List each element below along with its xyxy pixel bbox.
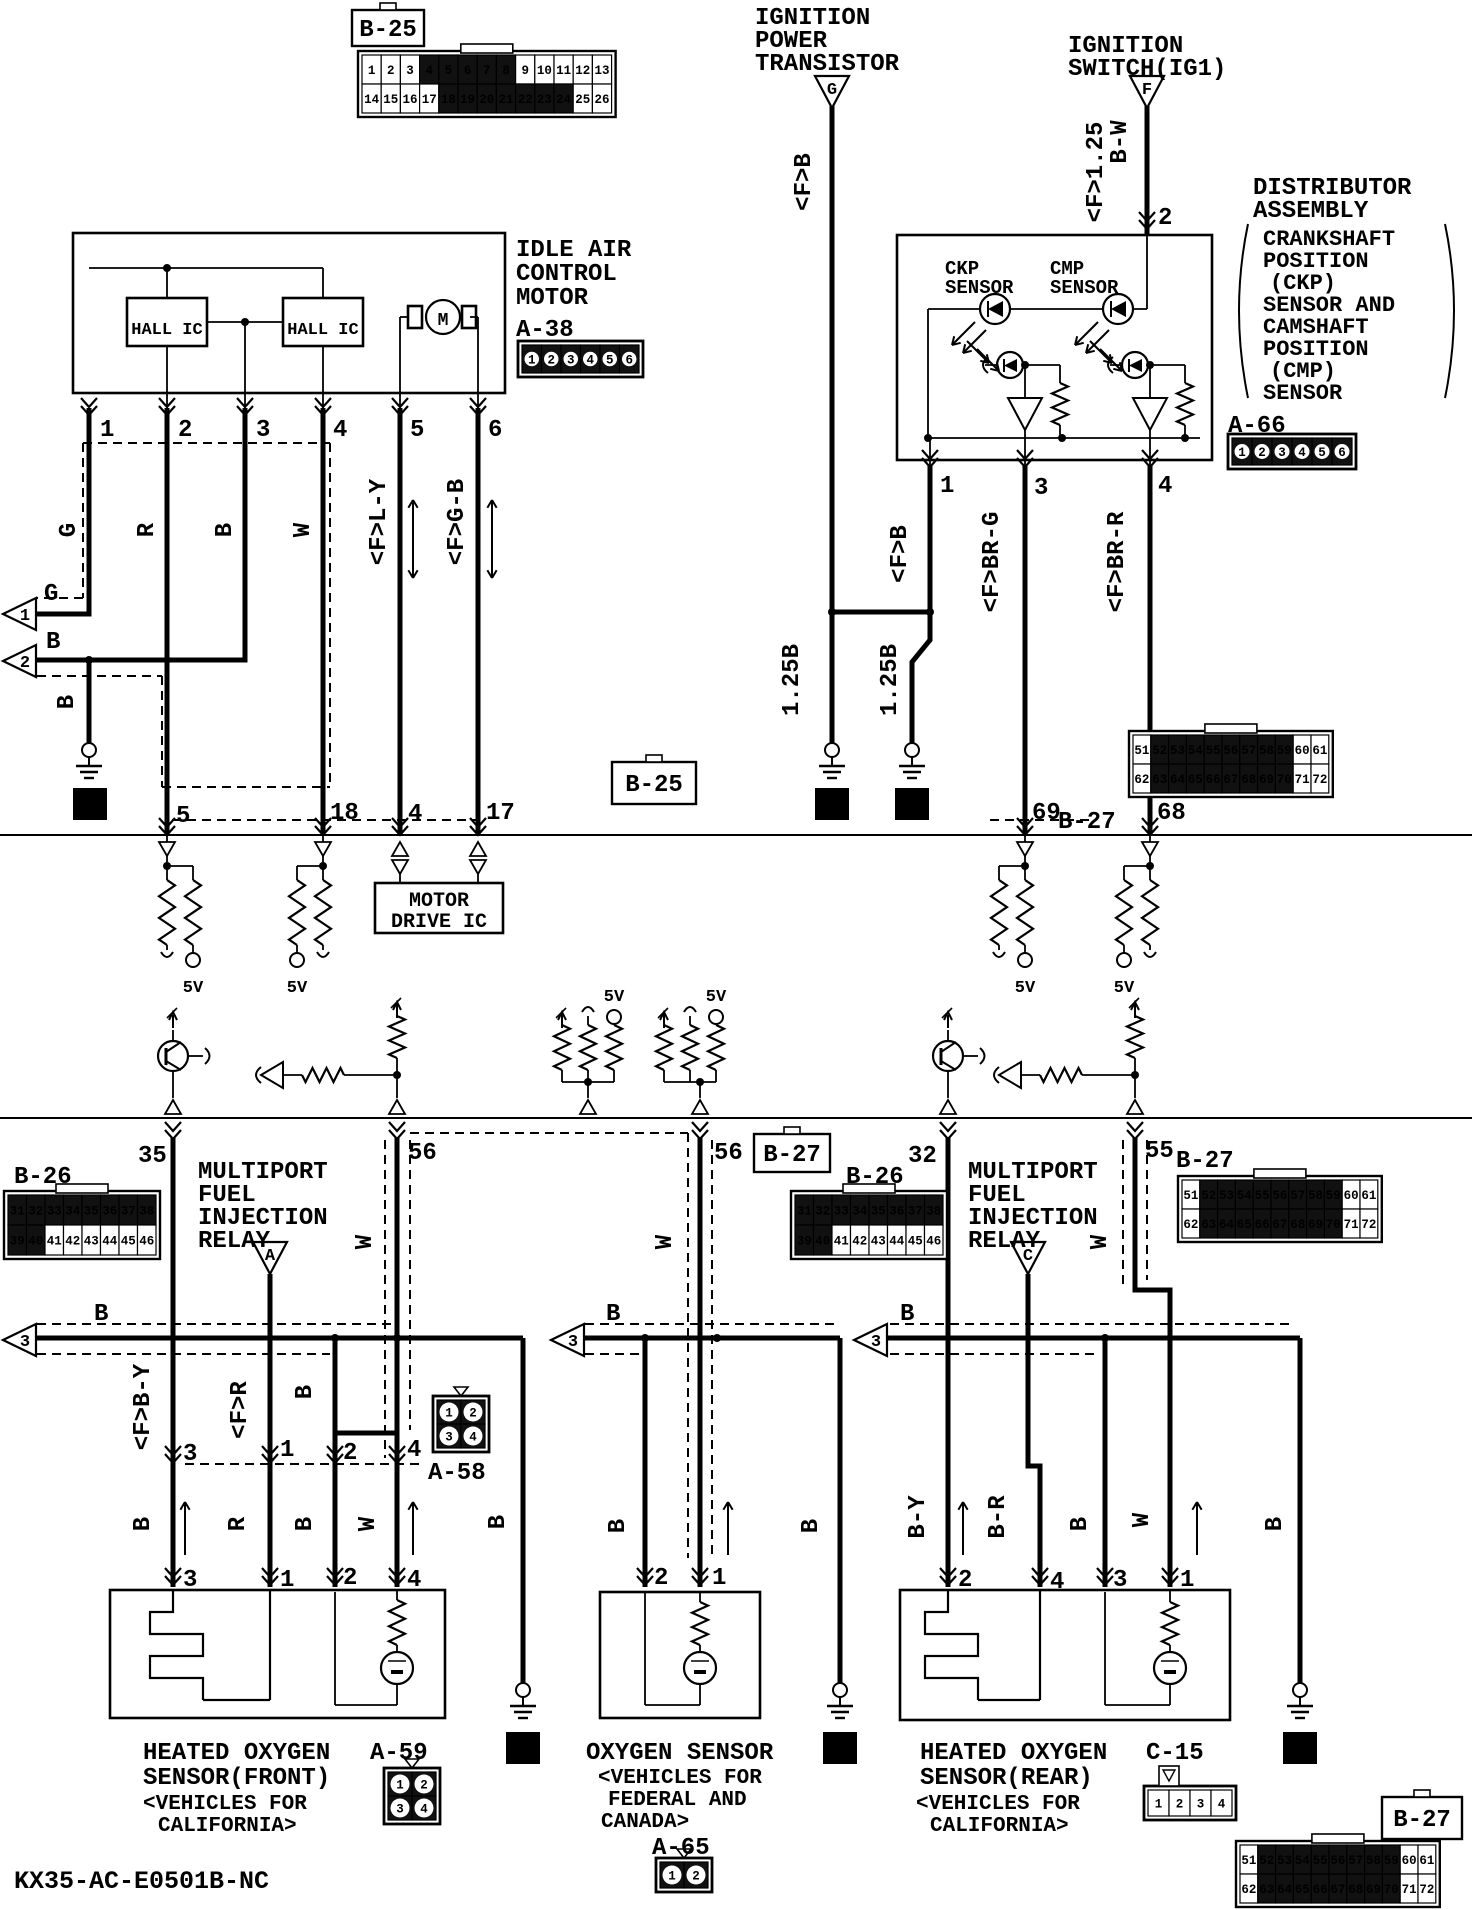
connector-b27-bottom-pin-56: 56 — [1330, 1854, 1345, 1868]
ho2s-front-2: SENSOR(FRONT) — [143, 1765, 330, 1792]
pin-ecu-55: 55 — [1145, 1138, 1174, 1165]
connector-b27-top-pin-66: 66 — [1206, 773, 1221, 787]
ref-3-mid-letter: 3 — [568, 1333, 578, 1352]
connector-a66-pin-5: 5 — [1318, 446, 1326, 460]
flag-b27-bottom-text: B-27 — [1393, 1807, 1451, 1834]
pin-ecu-17: 17 — [486, 800, 515, 827]
volt-5v-7: 5V — [706, 988, 727, 1007]
pin-o2-2: 2 — [654, 1565, 668, 1592]
idle-air-control-motor-code: A-38 — [516, 317, 574, 344]
connector-b27-top-pin-64: 64 — [1170, 773, 1186, 787]
connector-b27-top-pin-60: 60 — [1295, 744, 1310, 758]
connector-b27-top-pin-51: 51 — [1134, 744, 1149, 758]
volt-5v-6: 5V — [604, 988, 625, 1007]
connector-b27-midright-pin-52: 52 — [1201, 1189, 1216, 1203]
volt-5v-4: 5V — [1015, 979, 1036, 998]
wire-fby: <F>B-Y — [130, 1363, 157, 1450]
connector-a38-pin-6: 6 — [625, 354, 633, 368]
wire-b-horiz-mid: B — [606, 1301, 620, 1328]
connector-b26-mid-pin-46: 46 — [926, 1235, 941, 1249]
ho2s-front-code: A-59 — [370, 1740, 428, 1767]
ground-16-a: 16 — [73, 788, 107, 820]
wire-w-55: W — [1087, 1234, 1114, 1249]
connector-b25-top-pin-26: 26 — [594, 93, 609, 107]
volt-5v-1: 5V — [183, 979, 204, 998]
connector-b27-bottom: 5152535455565758596061626364656667686970… — [1236, 1834, 1440, 1907]
ground-16-e-text: 16 — [1287, 1738, 1313, 1763]
flag-b27-mid: B-27 — [754, 1127, 830, 1172]
wire-b-horiz: B — [46, 629, 60, 656]
flag-b25-mid: B-25 — [612, 755, 696, 804]
motor-drive-ic-1: MOTOR — [409, 890, 469, 913]
connector-b26-left-pin-45: 45 — [121, 1235, 136, 1249]
o2-mid-4: CANADA> — [601, 1811, 689, 1834]
connector-b25-top-pin-7: 7 — [483, 64, 491, 78]
pin-ecu-69: 69 — [1032, 800, 1061, 827]
connector-b25-top-pin-10: 10 — [537, 64, 552, 78]
connector-b26-mid-pin-33: 33 — [834, 1205, 849, 1219]
wire-w1: W — [290, 522, 317, 537]
pin-ho2sf-4: 4 — [407, 1567, 421, 1594]
motor-drive-ic-2: DRIVE IC — [391, 911, 487, 934]
connector-b26-left-label: B-26 — [14, 1164, 72, 1191]
connector-b25-top-pin-22: 22 — [518, 93, 533, 107]
connector-b27-top-pin-59: 59 — [1277, 744, 1292, 758]
pin-ho2sr-2: 2 — [958, 1567, 972, 1594]
connector-b25-top-pin-25: 25 — [575, 93, 590, 107]
connector-b27-top-pin-57: 57 — [1241, 744, 1256, 758]
cmp-sensor-2: SENSOR — [1050, 277, 1119, 299]
connector-b27-midright-pin-51: 51 — [1183, 1189, 1198, 1203]
connector-b27-top-pin-69: 69 — [1259, 773, 1274, 787]
idle-air-control-motor-label-3: MOTOR — [516, 285, 589, 312]
pin-ecu-56-mid: 56 — [714, 1140, 743, 1167]
connector-b26-left-pin-46: 46 — [139, 1235, 154, 1249]
idle-air-control-motor-label-2: CONTROL — [516, 261, 617, 288]
ground-16-d-text: 16 — [827, 1738, 853, 1763]
wire-b-mid1: B — [605, 1519, 632, 1533]
pin-iacm-3: 3 — [256, 417, 270, 444]
distributor-2: ASSEMBLY — [1253, 198, 1369, 225]
connector-b26-mid-pin-35: 35 — [871, 1205, 886, 1219]
ignition-switch-2: SWITCH(IG1) — [1068, 56, 1226, 83]
distributor-10: SENSOR — [1263, 381, 1343, 406]
footer-code: KX35-AC-E0501B-NC — [14, 1867, 269, 1896]
connector-b27-midright-pin-71: 71 — [1344, 1218, 1359, 1232]
connector-b25-top-pin-3: 3 — [406, 64, 414, 78]
connector-a38-pin-2: 2 — [547, 354, 555, 368]
connector-b26-mid-label: B-26 — [846, 1164, 904, 1191]
connector-a66-pin-1: 1 — [1238, 446, 1246, 460]
connector-c15-pin-3: 3 — [1197, 1798, 1205, 1812]
pin-dist-3: 3 — [1034, 475, 1048, 502]
connector-b27-midright-pin-67: 67 — [1272, 1218, 1287, 1232]
connector-b25-top-pin-1: 1 — [368, 64, 376, 78]
connector-b27-top-pin-54: 54 — [1188, 744, 1204, 758]
connector-b25-top-pin-23: 23 — [537, 93, 552, 107]
wire-b-low1: B — [130, 1517, 157, 1531]
connector-a38: 123456 — [518, 341, 643, 377]
o2-mid-3: FEDERAL AND — [608, 1789, 747, 1812]
connector-c15-pin-2: 2 — [1176, 1798, 1184, 1812]
idle-air-control-motor-label-1: IDLE AIR — [516, 237, 632, 264]
ref-g-ignition-power-transistor-letter: G — [827, 81, 837, 100]
pin-dist-4: 4 — [1158, 473, 1172, 500]
connector-a58-pin-3: 3 — [445, 1431, 453, 1445]
connector-b27-bottom-pin-66: 66 — [1313, 1883, 1328, 1897]
ho2s-rear-3: <VEHICLES FOR — [916, 1793, 1080, 1816]
pin-ho2sf-3: 3 — [183, 1567, 197, 1594]
mfi-relay-left-4: RELAY — [198, 1228, 271, 1255]
connector-b27-midright-pin-58: 58 — [1308, 1189, 1323, 1203]
connector-b26-mid: 31323334353637383940414243444546 — [791, 1184, 947, 1259]
wire-fr: <F>R — [227, 1381, 254, 1439]
ignition-power-transistor-3: TRANSISTOR — [755, 51, 900, 78]
connector-b27-top-pin-56: 56 — [1223, 744, 1238, 758]
connector-b27-bottom-pin-69: 69 — [1366, 1883, 1381, 1897]
ref-3-left-letter: 3 — [20, 1333, 30, 1352]
connector-a58-pin-2: 2 — [469, 1407, 477, 1421]
connector-b25-top-pin-21: 21 — [498, 93, 513, 107]
wire-b1: B — [212, 523, 239, 537]
connector-b25-top-pin-15: 15 — [383, 93, 398, 107]
connector-b27-bottom-pin-63: 63 — [1259, 1883, 1274, 1897]
connector-b27-midright-label: B-27 — [1176, 1148, 1234, 1175]
pin-iacm-4: 4 — [333, 417, 347, 444]
pin-a58-3: 3 — [183, 1441, 197, 1468]
connector-b27-bottom-pin-65: 65 — [1295, 1883, 1310, 1897]
wire-w-rear: W — [1129, 1512, 1156, 1527]
wire-b-mid2: B — [798, 1519, 825, 1533]
connector-b26-left-pin-44: 44 — [102, 1235, 118, 1249]
connector-b27-midright-pin-61: 61 — [1361, 1189, 1376, 1203]
connector-b25-top-pin-13: 13 — [594, 64, 609, 78]
connector-b25-top: 1234567891011121314151617181920212223242… — [358, 44, 616, 117]
hall-ic-left-label: HALL IC — [131, 321, 202, 340]
wire-b-relayzone: B — [292, 1385, 319, 1399]
connector-b26-mid-pin-31: 31 — [797, 1205, 812, 1219]
connector-b26-mid-pin-38: 38 — [926, 1205, 941, 1219]
connector-b27-top-pin-71: 71 — [1295, 773, 1310, 787]
ground-16-b: 16 — [895, 788, 929, 820]
connector-b26-mid-pin-45: 45 — [908, 1235, 923, 1249]
o2-mid-2: <VEHICLES FOR — [598, 1767, 762, 1790]
connector-a59: 1234 — [384, 1759, 440, 1824]
connector-b26-left-pin-43: 43 — [84, 1235, 99, 1249]
ref-3-mid: 3 — [551, 1324, 584, 1356]
connector-b27-midright-pin-60: 60 — [1344, 1189, 1359, 1203]
wire-bw: B-W — [1107, 120, 1134, 164]
ckp-sensor-2: SENSOR — [945, 277, 1014, 299]
connector-b27-bottom-pin-67: 67 — [1330, 1883, 1345, 1897]
connector-b27-top-pin-55: 55 — [1206, 744, 1221, 758]
ho2s-rear-1: HEATED OXYGEN — [920, 1740, 1107, 1767]
wire-b-rear: B — [1067, 1517, 1094, 1531]
connector-b27-top-pin-61: 61 — [1312, 744, 1327, 758]
connector-b27-bottom-pin-58: 58 — [1366, 1854, 1381, 1868]
connector-b27-midright-pin-54: 54 — [1237, 1189, 1253, 1203]
connector-b27-midright-pin-70: 70 — [1326, 1218, 1341, 1232]
connector-b26-mid-pin-44: 44 — [889, 1235, 905, 1249]
connector-a38-pin-5: 5 — [606, 354, 614, 368]
connector-a59-pin-4: 4 — [420, 1803, 428, 1817]
ref-g-ignition-power-transistor: G — [815, 76, 849, 108]
connector-b27-top-pin-53: 53 — [1170, 744, 1185, 758]
wire-w-low1: W — [355, 1516, 382, 1531]
connector-b27-midright-pin-55: 55 — [1255, 1189, 1270, 1203]
connector-a38-pin-4: 4 — [586, 354, 594, 368]
pin-ecu-5: 5 — [176, 803, 190, 830]
connector-b27-midright: 5152535455565758596061626364656667686970… — [1178, 1169, 1382, 1242]
pin-ecu-18: 18 — [330, 800, 359, 827]
wire-b-horiz-left: B — [94, 1301, 108, 1328]
pin-o2-1: 1 — [712, 1565, 726, 1592]
flag-b27-bottom: B-27 — [1382, 1790, 1462, 1839]
connector-b25-top-pin-12: 12 — [575, 64, 590, 78]
connector-c15: 1234 — [1144, 1766, 1236, 1820]
pin-iacm-2: 2 — [178, 417, 192, 444]
volt-5v-3: 5V — [287, 979, 308, 998]
connector-b27-midright-pin-53: 53 — [1219, 1189, 1234, 1203]
ground-16-c: 16 — [506, 1732, 540, 1764]
connector-b26-left-pin-36: 36 — [102, 1205, 117, 1219]
connector-b27-midright-pin-66: 66 — [1255, 1218, 1270, 1232]
connector-b27-top-pin-68: 68 — [1241, 773, 1256, 787]
flag-b25-top: B-25 — [352, 3, 424, 46]
connector-b27-top-label: B-27 — [1058, 809, 1116, 836]
connector-b26-left-pin-41: 41 — [47, 1235, 62, 1249]
pin-a58-2: 2 — [343, 1440, 357, 1467]
connector-a38-pin-3: 3 — [567, 354, 575, 368]
pin-ecu-32: 32 — [908, 1143, 937, 1170]
connector-b26-mid-pin-42: 42 — [852, 1235, 867, 1249]
wiring-diagram-page: 1234567891011121314151617181920212223242… — [0, 0, 1472, 1910]
connector-b27-midright-pin-69: 69 — [1308, 1218, 1323, 1232]
connector-b26-mid-pin-39: 39 — [797, 1235, 812, 1249]
connector-b27-bottom-pin-70: 70 — [1384, 1883, 1399, 1897]
connector-b27-bottom-pin-52: 52 — [1259, 1854, 1274, 1868]
wire-r-low: R — [225, 1516, 252, 1531]
mfi-relay-right-4: RELAY — [968, 1228, 1041, 1255]
connector-b27-top-pin-63: 63 — [1152, 773, 1167, 787]
connector-a66-pin-4: 4 — [1298, 446, 1306, 460]
pin-iacm-5: 5 — [410, 417, 424, 444]
pin-iacm-1: 1 — [100, 417, 114, 444]
connector-b25-top-pin-5: 5 — [445, 64, 453, 78]
flag-b27-mid-text: B-27 — [763, 1142, 821, 1169]
pin-ecu-56-left: 56 — [408, 1140, 437, 1167]
connector-b25-top-pin-14: 14 — [364, 93, 380, 107]
wire-b-rear-gnd: B — [1262, 1517, 1289, 1531]
pin-ho2sr-3: 3 — [1113, 1567, 1127, 1594]
connector-b25-top-pin-19: 19 — [460, 93, 475, 107]
connector-b27-midright-pin-62: 62 — [1183, 1218, 1198, 1232]
connector-b26-left-pin-34: 34 — [65, 1205, 81, 1219]
connector-b27-midright-pin-72: 72 — [1361, 1218, 1376, 1232]
pin-dist-2: 2 — [1158, 205, 1172, 232]
pin-iacm-6: 6 — [488, 417, 502, 444]
connector-b27-top-pin-52: 52 — [1152, 744, 1167, 758]
connector-b26-left-pin-39: 39 — [10, 1235, 25, 1249]
pin-ecu-68: 68 — [1157, 800, 1186, 827]
wire-b-horiz-right: B — [900, 1301, 914, 1328]
flag-b25-top-text: B-25 — [359, 17, 417, 44]
connector-b27-top-pin-62: 62 — [1134, 773, 1149, 787]
ref-f-ignition-switch-letter: F — [1142, 81, 1152, 100]
connector-b25-top-pin-11: 11 — [556, 64, 571, 78]
ho2s-rear-code: C-15 — [1146, 1740, 1204, 1767]
wire-125b-1: 1.25B — [779, 644, 806, 716]
connector-b26-left-pin-32: 32 — [28, 1205, 43, 1219]
wire-fbrr: <F>BR-R — [1104, 511, 1131, 612]
connector-b26-left-pin-35: 35 — [84, 1205, 99, 1219]
ground-16-c-text: 16 — [510, 1738, 536, 1763]
connector-b26-left-pin-38: 38 — [139, 1205, 154, 1219]
wire-f125: <F>1.25 — [1083, 122, 1110, 223]
o2-mid-1: OXYGEN SENSOR — [586, 1740, 774, 1767]
connector-b27-bottom-pin-68: 68 — [1348, 1883, 1363, 1897]
wiring-diagram-canvas: 1234567891011121314151617181920212223242… — [0, 0, 1472, 1910]
connector-b25-top-pin-18: 18 — [441, 93, 456, 107]
connector-b27-midright-pin-68: 68 — [1290, 1218, 1305, 1232]
ground-16-a-text: 16 — [77, 794, 103, 819]
connector-b25-top-pin-8: 8 — [502, 64, 510, 78]
pin-dist-1: 1 — [940, 473, 954, 500]
ref-2-left-letter: 2 — [20, 654, 30, 673]
connector-b26-mid-pin-36: 36 — [889, 1205, 904, 1219]
connector-a38-pin-1: 1 — [528, 354, 536, 368]
pin-ecu-4: 4 — [408, 801, 422, 828]
connector-b27-top-pin-70: 70 — [1277, 773, 1292, 787]
connector-b26-mid-pin-43: 43 — [871, 1235, 886, 1249]
connector-b27-bottom-pin-54: 54 — [1295, 1854, 1311, 1868]
hall-ic-right-label: HALL IC — [287, 321, 358, 340]
flag-b25-mid-text: B-25 — [625, 772, 683, 799]
connector-b26-left-pin-33: 33 — [47, 1205, 62, 1219]
connector-b26-mid-pin-37: 37 — [908, 1205, 923, 1219]
ref-1-left-letter: 1 — [20, 607, 30, 626]
connector-b26-left: 31323334353637383940414243444546 — [4, 1184, 160, 1259]
ground-4-text: 4 — [825, 794, 838, 819]
connector-b26-mid-pin-32: 32 — [815, 1205, 830, 1219]
connector-b27-midright-pin-59: 59 — [1326, 1189, 1341, 1203]
connector-b27-bottom-pin-62: 62 — [1241, 1883, 1256, 1897]
wire-b-low2: B — [292, 1517, 319, 1531]
connector-b26-left-pin-37: 37 — [121, 1205, 136, 1219]
connector-b27-midright-pin-65: 65 — [1237, 1218, 1252, 1232]
connector-a58: 1234 — [433, 1387, 489, 1452]
connector-b27-bottom-pin-53: 53 — [1277, 1854, 1292, 1868]
connector-a65-pin-1: 1 — [668, 1870, 676, 1884]
connector-b25-top-pin-2: 2 — [387, 64, 395, 78]
connector-a66-pin-6: 6 — [1338, 446, 1346, 460]
connector-b27-bottom-pin-64: 64 — [1277, 1883, 1293, 1897]
connector-b25-top-pin-4: 4 — [425, 64, 433, 78]
wire-by-rear: B-Y — [905, 1495, 932, 1539]
connector-b27-top-pin-67: 67 — [1223, 773, 1238, 787]
connector-a59-pin-1: 1 — [396, 1779, 404, 1793]
connector-b25-top-pin-9: 9 — [521, 64, 529, 78]
connector-b27-bottom-pin-61: 61 — [1419, 1854, 1434, 1868]
connector-b27-bottom-pin-51: 51 — [1241, 1854, 1256, 1868]
ho2s-rear-2: SENSOR(REAR) — [920, 1765, 1093, 1792]
ref-2-left: 2 — [3, 645, 36, 677]
connector-b27-top-pin-58: 58 — [1259, 744, 1274, 758]
pin-ho2sf-1: 1 — [280, 1567, 294, 1594]
connector-a65-pin-2: 2 — [692, 1870, 700, 1884]
pin-a58-4: 4 — [407, 1437, 421, 1464]
connector-b27-midright-pin-63: 63 — [1201, 1218, 1216, 1232]
connector-b26-mid-pin-34: 34 — [852, 1205, 868, 1219]
ho2s-front-1: HEATED OXYGEN — [143, 1740, 330, 1767]
connector-b25-top-pin-24: 24 — [556, 93, 572, 107]
ref-3-left: 3 — [3, 1324, 36, 1356]
connector-b27-midright-pin-56: 56 — [1272, 1189, 1287, 1203]
connector-b27-top-pin-65: 65 — [1188, 773, 1203, 787]
connector-b26-left-pin-40: 40 — [28, 1235, 43, 1249]
pin-ho2sf-2: 2 — [343, 1565, 357, 1592]
wire-br-rear: B-R — [985, 1495, 1012, 1539]
connector-b27-midright-pin-64: 64 — [1219, 1218, 1235, 1232]
connector-b26-left-pin-31: 31 — [10, 1205, 25, 1219]
ground-16-b-text: 16 — [899, 794, 925, 819]
pin-a58-1: 1 — [280, 1437, 294, 1464]
motor-symbol-letter: M — [438, 311, 449, 331]
connector-a59-pin-3: 3 — [396, 1803, 404, 1817]
connector-b27-bottom-pin-71: 71 — [1402, 1883, 1417, 1897]
wire-125b-2: 1.25B — [877, 644, 904, 716]
connector-a59-pin-2: 2 — [420, 1779, 428, 1793]
wire-fbrg: <F>BR-G — [979, 512, 1006, 613]
ref-1-left: 1 — [3, 598, 36, 630]
wire-r: R — [134, 522, 161, 537]
connector-b26-mid-pin-40: 40 — [815, 1235, 830, 1249]
connector-b27-midright-pin-57: 57 — [1290, 1189, 1305, 1203]
wire-w-56mid: W — [652, 1234, 679, 1249]
connector-b27-bottom-pin-60: 60 — [1402, 1854, 1417, 1868]
connector-b25-top-pin-16: 16 — [402, 93, 417, 107]
connector-a66-pin-2: 2 — [1258, 446, 1266, 460]
pin-ho2sr-1: 1 — [1180, 1567, 1194, 1594]
o2-mid-code: A-65 — [652, 1835, 710, 1862]
connector-b25-top-pin-6: 6 — [464, 64, 472, 78]
connector-b27-top: 5152535455565758596061626364656667686970… — [1129, 724, 1333, 797]
pin-ho2sr-4: 4 — [1050, 1569, 1064, 1596]
wire-w-56left: W — [352, 1234, 379, 1249]
ho2s-front-3: <VEHICLES FOR — [143, 1793, 307, 1816]
connector-b27-bottom-pin-72: 72 — [1419, 1883, 1434, 1897]
ground-16-e: 16 — [1283, 1732, 1317, 1764]
connector-a58-pin-4: 4 — [469, 1431, 477, 1445]
ground-16-d: 16 — [823, 1732, 857, 1764]
connector-b27-bottom-pin-55: 55 — [1313, 1854, 1328, 1868]
connector-b26-left-pin-42: 42 — [65, 1235, 80, 1249]
connector-b26-mid-pin-41: 41 — [834, 1235, 849, 1249]
connector-b27-top-pin-72: 72 — [1312, 773, 1327, 787]
ho2s-front-4: CALIFORNIA> — [158, 1815, 297, 1838]
connector-b25-top-pin-20: 20 — [479, 93, 494, 107]
wire-fb-transistor: <F>B — [791, 153, 818, 211]
ref-3-right-letter: 3 — [871, 1333, 881, 1352]
connector-a58-pin-1: 1 — [445, 1407, 453, 1421]
connector-a66-pin-3: 3 — [1278, 446, 1286, 460]
wire-b-low3: B — [485, 1515, 512, 1529]
wire-b-gnd-left: B — [54, 695, 81, 709]
ground-4: 4 — [815, 788, 849, 820]
wire-fgb: <F>G-B — [444, 479, 471, 565]
connector-c15-pin-4: 4 — [1218, 1798, 1226, 1812]
wire-g-horiz: G — [44, 581, 58, 608]
